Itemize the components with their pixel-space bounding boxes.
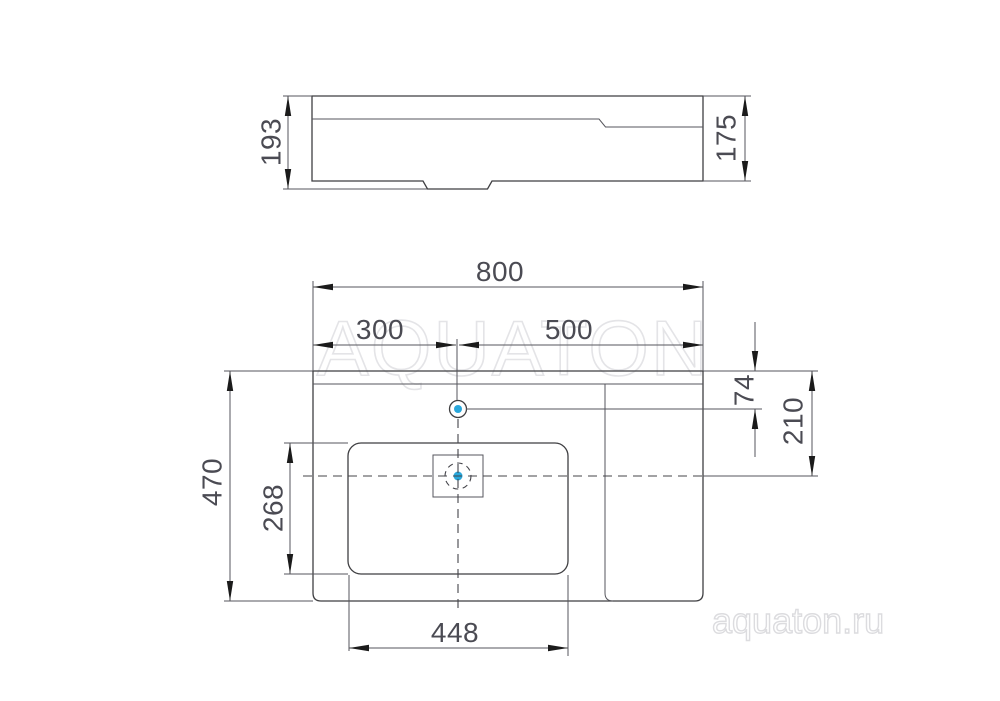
arrowhead <box>742 96 748 116</box>
arrowhead <box>809 456 815 476</box>
dim-470-label: 470 <box>197 458 228 506</box>
dim-210-label: 210 <box>778 397 809 445</box>
plan-view-outline <box>313 371 703 601</box>
side-view: 193 175 <box>256 96 752 189</box>
dimension-175: 175 <box>703 96 751 181</box>
dim-500-label: 500 <box>545 314 593 345</box>
watermark-aquaton-ru: aquaton.ru <box>712 600 884 641</box>
dim-175-label: 175 <box>711 114 742 162</box>
arrowhead <box>313 284 333 290</box>
dimension-268: 268 <box>258 443 349 574</box>
arrowhead <box>809 371 815 391</box>
dimension-193: 193 <box>256 96 428 189</box>
technical-drawing-page: AQUATON aquaton.ru 193 175 <box>0 0 1000 701</box>
dimension-470: 470 <box>197 371 314 601</box>
arrowhead <box>287 554 293 574</box>
deck-divider-line <box>605 384 613 601</box>
dimension-210: 210 <box>778 371 816 476</box>
arrowhead <box>285 169 291 189</box>
dim-300-label: 300 <box>356 314 404 345</box>
faucet-hole-marker <box>454 405 462 413</box>
dim-448-label: 448 <box>431 617 479 648</box>
arrowhead <box>349 645 369 651</box>
dim-74-label: 74 <box>729 374 760 406</box>
arrowhead <box>752 409 758 429</box>
arrowhead <box>227 581 233 601</box>
arrowhead <box>227 371 233 391</box>
arrowhead <box>548 645 568 651</box>
dimension-800: 800 <box>313 256 703 290</box>
side-view-outline <box>312 96 703 189</box>
arrowhead <box>287 443 293 463</box>
dim-800-label: 800 <box>476 256 524 287</box>
dim-268-label: 268 <box>258 484 289 532</box>
arrowhead <box>752 351 758 371</box>
arrowhead <box>742 161 748 181</box>
washbasin-drawing: AQUATON aquaton.ru 193 175 <box>0 0 1000 701</box>
faucet-hole <box>450 401 467 418</box>
arrowhead <box>683 284 703 290</box>
side-view-basin-floor-line <box>312 119 703 127</box>
arrowhead <box>285 96 291 116</box>
dim-193-label: 193 <box>256 118 287 166</box>
